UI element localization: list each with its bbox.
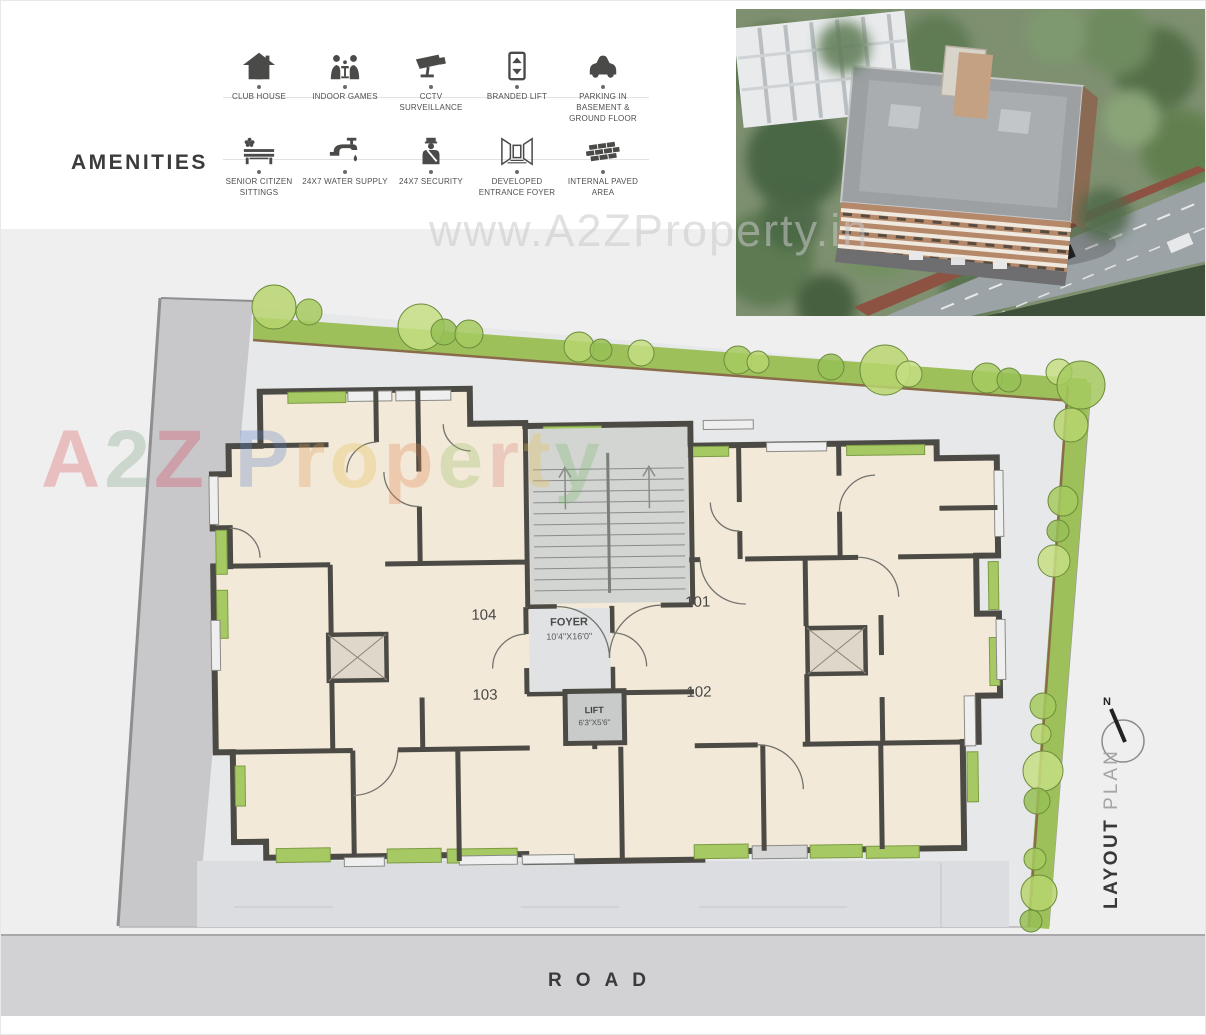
unit-label-101: 101 xyxy=(685,593,710,610)
amenity-entrance-foyer: DEVELOPED ENTRANCE FOYER xyxy=(474,136,560,199)
amenity-label: CLUB HOUSE xyxy=(232,92,286,112)
amenities-row-1: CLUB HOUSE INDOOR GAMES CCTV SURVEILLANC… xyxy=(216,51,648,124)
amenity-label: PARKING IN BASEMENT & GROUND FLOOR xyxy=(560,92,646,124)
amenity-bullet xyxy=(515,85,519,89)
road-band: ROAD xyxy=(1,934,1206,1016)
club-house-icon xyxy=(242,51,276,81)
amenity-bullet xyxy=(601,85,605,89)
indoor-games-icon xyxy=(328,51,362,81)
unit-label-103: 103 xyxy=(472,686,497,703)
amenity-label: DEVELOPED ENTRANCE FOYER xyxy=(474,177,560,199)
security-guard-icon xyxy=(414,136,448,166)
north-label: N xyxy=(1103,696,1111,708)
amenity-label: SENIOR CITIZEN SITTINGS xyxy=(216,177,302,199)
front-court xyxy=(197,861,1009,927)
lift-shaft xyxy=(565,691,625,744)
amenities-title: AMENITIES xyxy=(71,151,208,175)
amenity-paved-area: INTERNAL PAVED AREA xyxy=(560,136,646,199)
foyer-label: FOYER xyxy=(550,616,588,629)
amenity-parking: PARKING IN BASEMENT & GROUND FLOOR xyxy=(560,51,646,124)
amenity-indoor-games: INDOOR GAMES xyxy=(302,51,388,124)
amenity-bullet xyxy=(429,85,433,89)
paved-area-icon xyxy=(586,136,620,166)
amenity-branded-lift: BRANDED LIFT xyxy=(474,51,560,124)
amenity-bullet xyxy=(343,170,347,174)
plan-word: PLAN xyxy=(1101,748,1122,810)
building-footprint: FOYER 10'4"X16'0" LIFT 6'3"X5'6" xyxy=(208,381,1009,868)
amenity-cctv: CCTV SURVEILLANCE xyxy=(388,51,474,124)
amenity-label: BRANDED LIFT xyxy=(487,92,547,112)
amenities-grid: CLUB HOUSE INDOOR GAMES CCTV SURVEILLANC… xyxy=(216,51,648,199)
amenity-bullet xyxy=(515,170,519,174)
amenity-security: 24X7 SECURITY xyxy=(388,136,474,199)
amenity-bullet xyxy=(601,170,605,174)
amenity-label: INDOOR GAMES xyxy=(312,92,378,112)
layout-plan-title: LAYOUT PLAN xyxy=(1101,748,1123,909)
compass-needle xyxy=(1111,709,1125,742)
amenities-row-2: SENIOR CITIZEN SITTINGS 24X7 WATER SUPPL… xyxy=(216,136,648,199)
lift-label: LIFT xyxy=(585,705,605,715)
unit-label-104: 104 xyxy=(471,606,496,623)
layout-word: LAYOUT xyxy=(1101,818,1122,909)
bench-icon xyxy=(242,136,276,166)
cctv-icon xyxy=(414,51,448,81)
amenity-label: 24X7 WATER SUPPLY xyxy=(302,177,388,197)
entrance-foyer-icon xyxy=(500,136,534,166)
amenity-club-house: CLUB HOUSE xyxy=(216,51,302,124)
amenities-panel: AMENITIES CLUB HOUSE INDOOR GAMES CCT xyxy=(1,1,736,229)
lift-dims: 6'3"X5'6" xyxy=(578,718,610,727)
water-tap-icon xyxy=(328,136,362,166)
amenity-bullet xyxy=(257,170,261,174)
amenity-water-supply: 24X7 WATER SUPPLY xyxy=(302,136,388,199)
parking-icon xyxy=(586,51,620,81)
staircase xyxy=(528,427,689,604)
amenity-label: INTERNAL PAVED AREA xyxy=(560,177,646,199)
north-compass: N xyxy=(1087,693,1167,765)
amenity-bullet xyxy=(343,85,347,89)
amenity-senior-sittings: SENIOR CITIZEN SITTINGS xyxy=(216,136,302,199)
amenity-label: 24X7 SECURITY xyxy=(399,177,463,197)
amenity-bullet xyxy=(429,170,433,174)
road-label: ROAD xyxy=(548,970,660,992)
lift-icon xyxy=(500,51,534,81)
site-plan: FOYER 10'4"X16'0" LIFT 6'3"X5'6" xyxy=(1,226,1206,936)
unit-label-102: 102 xyxy=(686,683,711,700)
foyer-dims: 10'4"X16'0" xyxy=(546,631,592,642)
amenity-label: CCTV SURVEILLANCE xyxy=(388,92,474,114)
layout-plan-page: AMENITIES CLUB HOUSE INDOOR GAMES CCT xyxy=(0,0,1206,1035)
amenity-bullet xyxy=(257,85,261,89)
